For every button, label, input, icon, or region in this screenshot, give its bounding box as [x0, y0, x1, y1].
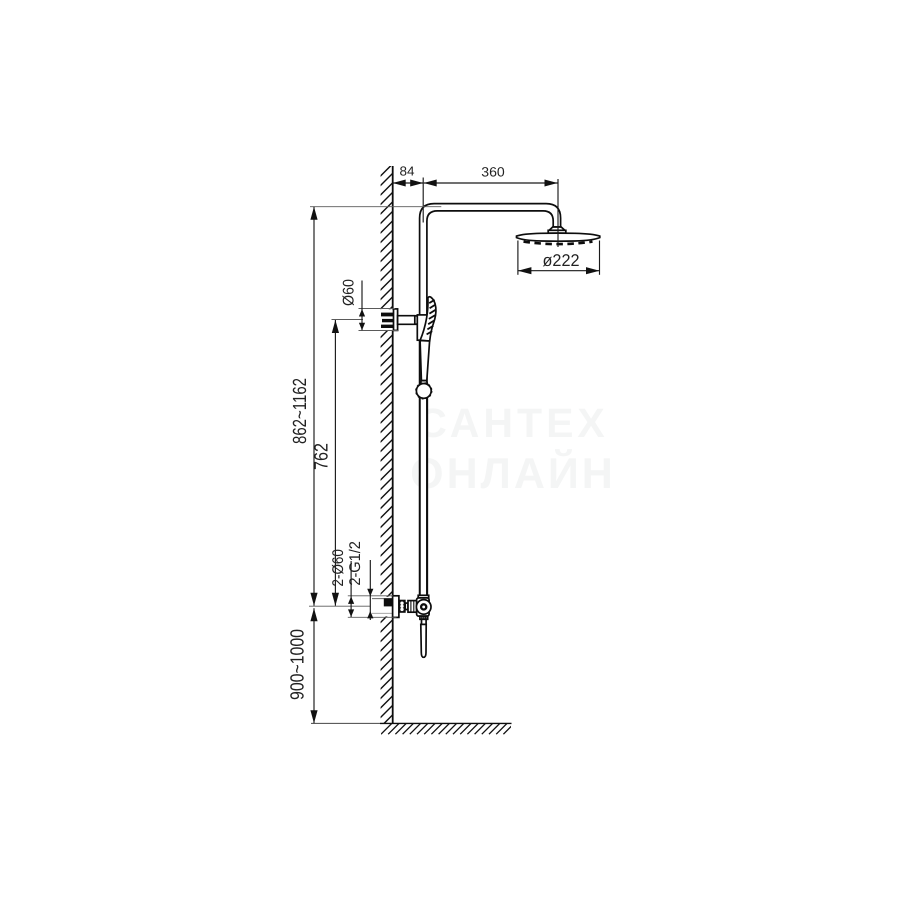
svg-text:2-G1/2: 2-G1/2	[347, 541, 364, 586]
svg-text:Ø60: Ø60	[341, 279, 358, 306]
svg-text:2-Ø60: 2-Ø60	[330, 549, 347, 587]
svg-text:862~1162: 862~1162	[290, 378, 311, 444]
svg-text:762: 762	[312, 443, 333, 470]
svg-text:360: 360	[481, 165, 505, 180]
svg-text:ø222: ø222	[543, 251, 580, 270]
svg-text:САНТЕХ: САНТЕХ	[417, 400, 609, 446]
svg-text:ОНЛАЙН: ОНЛАЙН	[410, 449, 616, 498]
svg-text:84: 84	[400, 164, 415, 179]
svg-text:900~1000: 900~1000	[288, 629, 309, 700]
